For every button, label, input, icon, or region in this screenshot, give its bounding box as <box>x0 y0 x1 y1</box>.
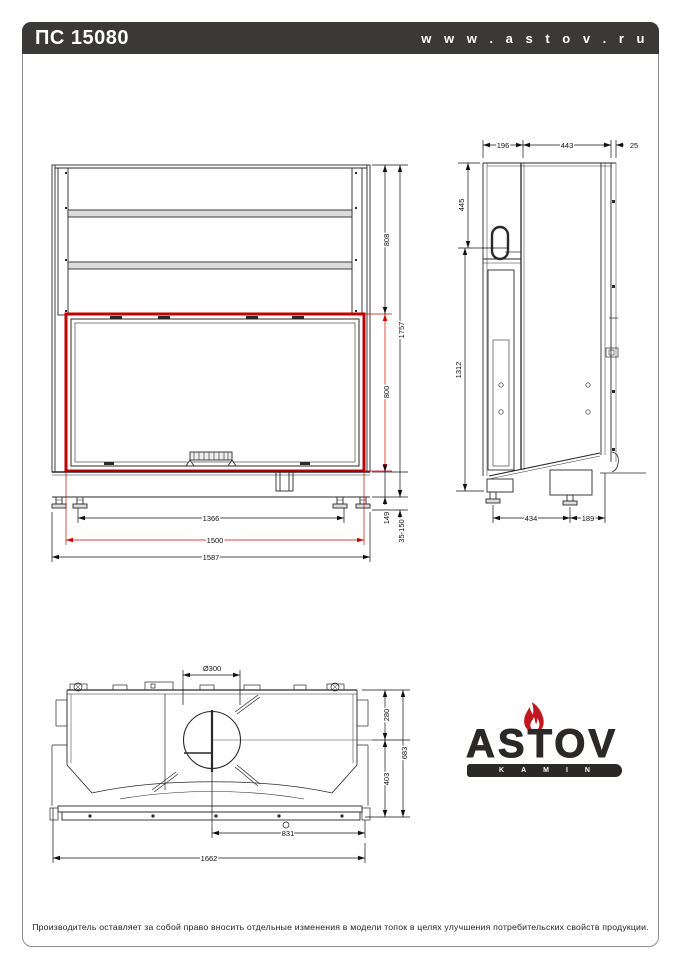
dim-total-height: 1757 <box>397 322 406 339</box>
brand-name: ASTOV <box>466 724 618 764</box>
astov-logo: ASTOV KAMIN <box>466 700 631 785</box>
dim-upper-height: 808 <box>382 234 391 247</box>
dim-rear-depth: 196 <box>497 141 510 150</box>
dim-side-feet: 434 <box>525 514 538 523</box>
dim-glass-height: 800 <box>382 386 391 399</box>
dim-feet-spacing: 1366 <box>203 514 220 523</box>
front-view-drawing <box>52 165 370 508</box>
front-view-dimensions: 808 800 149 1757 35-150 1366 1500 1587 <box>52 165 408 562</box>
dim-flue-front: 403 <box>382 773 391 786</box>
datasheet-page: ПС 15080 w w w . a s t o v . r u Произво… <box>0 0 679 970</box>
dim-front-overhang: 189 <box>582 514 595 523</box>
side-view-dimensions: 196 443 25 445 1312 434 189 <box>454 140 638 523</box>
front-feet <box>52 497 370 508</box>
dim-flue-right: 831 <box>282 829 295 838</box>
flue-circle <box>184 710 373 772</box>
side-handle[interactable] <box>492 227 521 259</box>
dim-total-depth: 683 <box>400 747 409 760</box>
top-view-drawing <box>50 682 372 828</box>
dim-total-width: 1587 <box>203 553 220 562</box>
technical-drawing: 808 800 149 1757 35-150 1366 1500 1587 <box>0 0 679 970</box>
dim-top-handle: 445 <box>457 199 466 212</box>
front-rail <box>606 163 618 462</box>
brand-sub: KAMIN <box>467 764 622 777</box>
dim-body-height: 1312 <box>454 362 463 379</box>
column-screws <box>65 172 357 312</box>
dim-body-depth: 443 <box>561 141 574 150</box>
front-bar <box>50 806 370 820</box>
door-handle[interactable] <box>186 452 236 466</box>
front-hook <box>612 452 618 472</box>
dim-flue-diameter: Ø300 <box>203 664 221 673</box>
dim-flue-rear: 280 <box>382 709 391 722</box>
dim-base-height: 149 <box>382 512 391 525</box>
corner-braces <box>152 695 260 792</box>
dim-glass-width: 1500 <box>207 536 224 545</box>
side-feet <box>486 492 577 505</box>
door-clips <box>104 316 310 465</box>
dim-leg-range: 35-150 <box>397 519 406 542</box>
firebox-red-frame <box>66 314 364 471</box>
side-view-drawing <box>483 163 646 505</box>
dim-top-width: 1662 <box>201 854 218 863</box>
dim-frame-depth: 25 <box>630 141 638 150</box>
